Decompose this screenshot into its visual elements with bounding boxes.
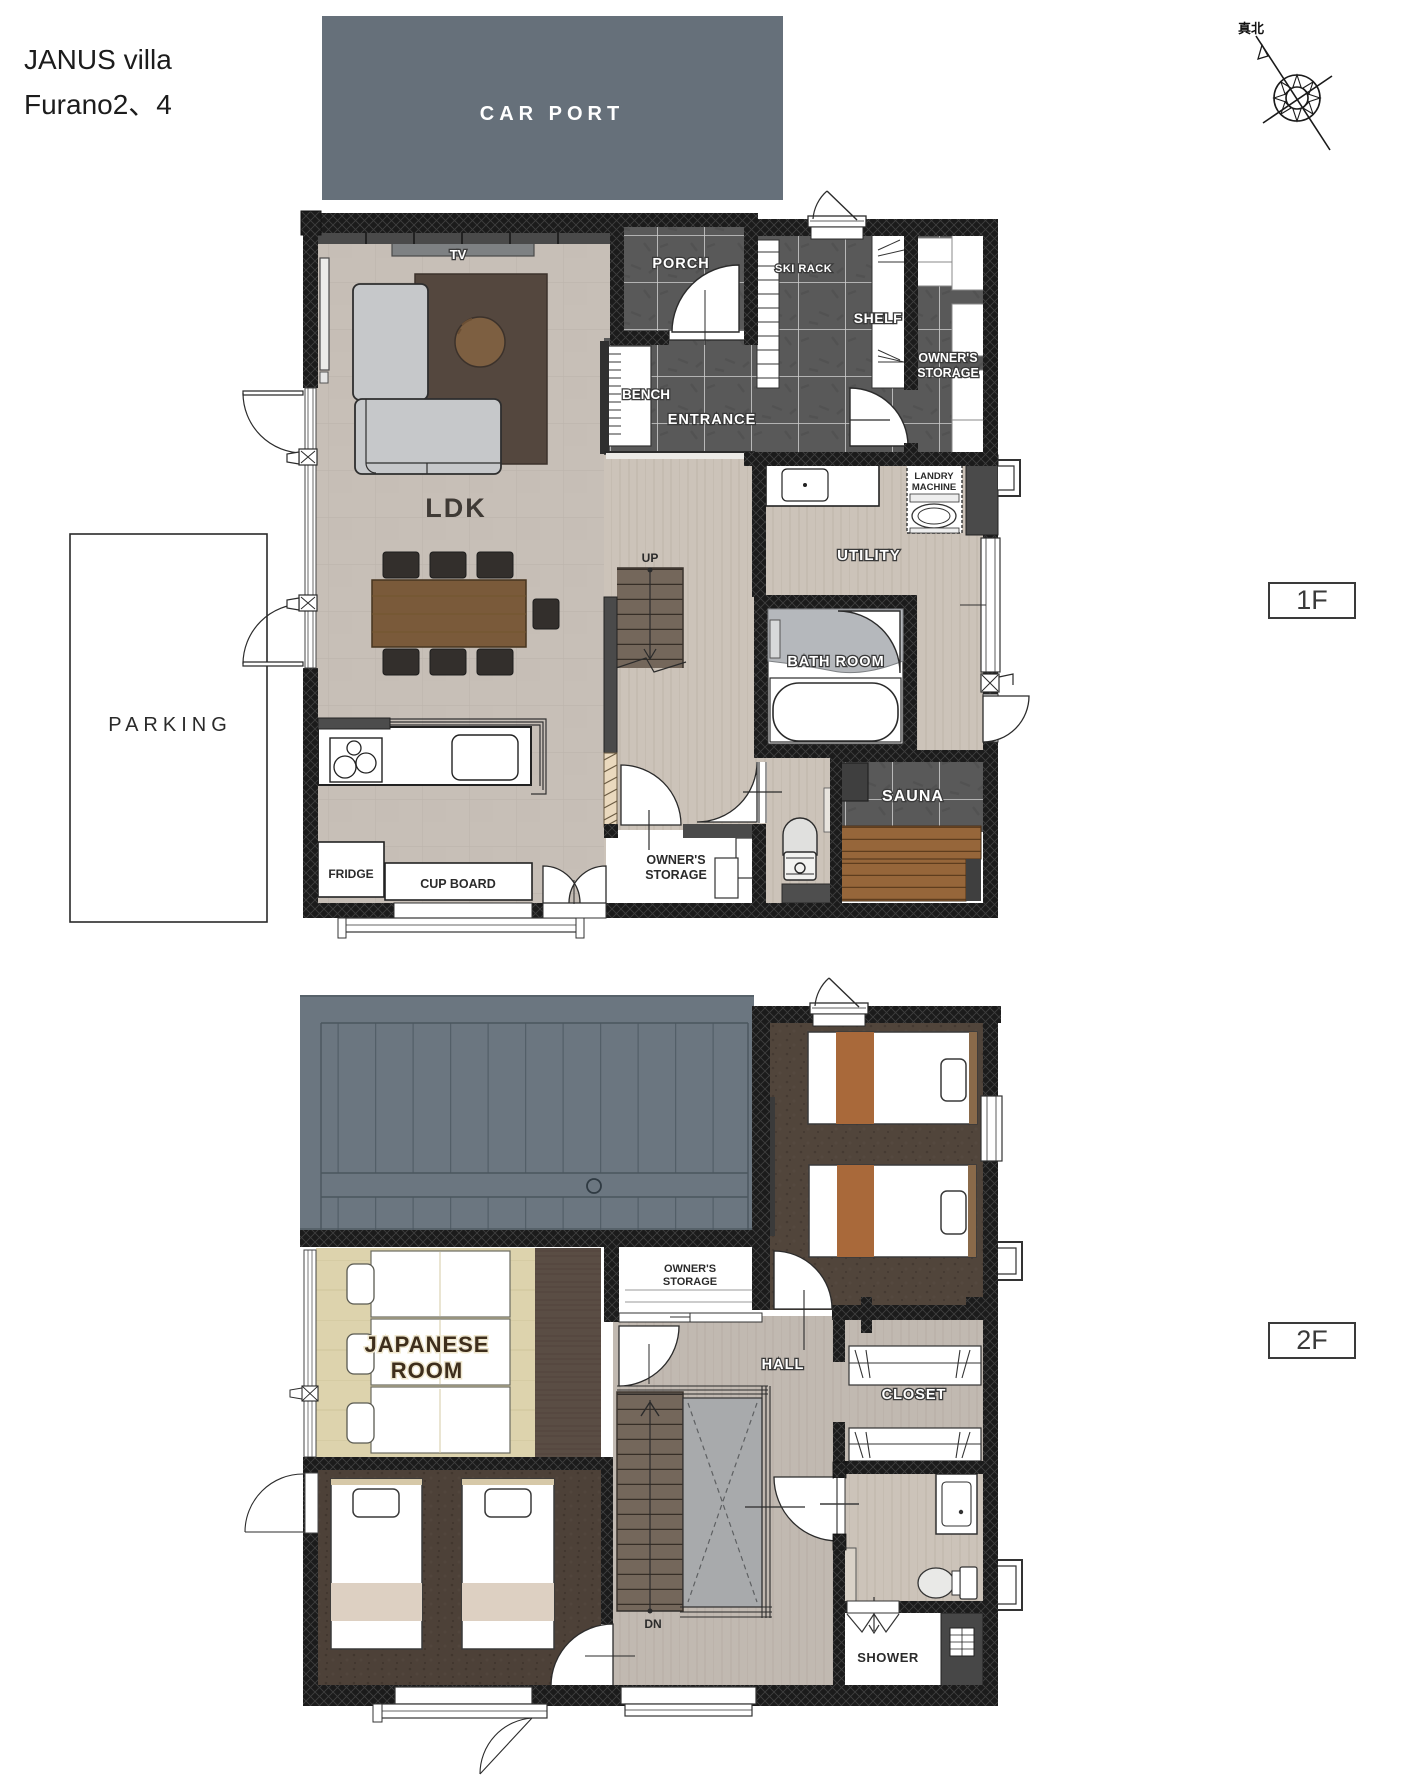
svg-text:真北: 真北 — [1238, 21, 1264, 36]
svg-text:OWNER'S: OWNER'S — [664, 1263, 716, 1275]
svg-text:STORAGE: STORAGE — [917, 366, 979, 380]
svg-text:ROOM: ROOM — [391, 1358, 463, 1383]
svg-text:PARKING: PARKING — [108, 714, 232, 736]
svg-text:FRIDGE: FRIDGE — [328, 867, 373, 881]
svg-text:LDK: LDK — [425, 493, 487, 523]
svg-text:UP: UP — [642, 551, 659, 565]
svg-text:JAPANESE: JAPANESE — [365, 1332, 490, 1357]
svg-text:DN: DN — [644, 1617, 661, 1631]
svg-text:OWNER'S: OWNER'S — [918, 351, 977, 365]
svg-text:SHELF: SHELF — [854, 310, 902, 326]
svg-text:TV: TV — [450, 247, 467, 262]
svg-text:CAR PORT: CAR PORT — [480, 103, 624, 125]
svg-text:SKI RACK: SKI RACK — [775, 263, 832, 275]
svg-text:JANUS villa: JANUS villa — [24, 44, 172, 75]
svg-text:Furano2、4: Furano2、4 — [24, 89, 172, 120]
svg-text:PORCH: PORCH — [652, 256, 709, 272]
svg-text:1F: 1F — [1296, 585, 1328, 615]
svg-text:MACHINE: MACHINE — [912, 482, 956, 493]
svg-text:CLOSET: CLOSET — [882, 1387, 947, 1403]
svg-text:SAUNA: SAUNA — [882, 788, 944, 805]
svg-text:ENTRANCE: ENTRANCE — [668, 412, 757, 428]
svg-text:CUP BOARD: CUP BOARD — [420, 877, 495, 891]
svg-text:UTILITY: UTILITY — [837, 547, 901, 564]
svg-text:SHOWER: SHOWER — [857, 1650, 919, 1665]
svg-text:STORAGE: STORAGE — [645, 868, 707, 882]
svg-text:BATH ROOM: BATH ROOM — [787, 654, 884, 670]
svg-text:2F: 2F — [1296, 1325, 1328, 1355]
svg-text:HALL: HALL — [762, 1357, 805, 1373]
svg-text:OWNER'S: OWNER'S — [646, 853, 705, 867]
svg-text:LANDRY: LANDRY — [914, 471, 954, 482]
svg-text:STORAGE: STORAGE — [663, 1276, 717, 1288]
svg-text:BENCH: BENCH — [622, 387, 670, 402]
